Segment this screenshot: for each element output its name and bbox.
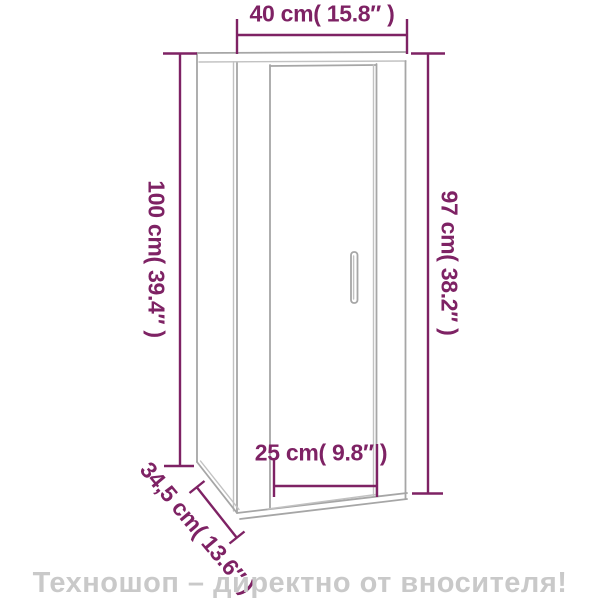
side-bottom-edge-outer — [197, 462, 237, 513]
door-bottom-edge — [268, 495, 376, 510]
cabinet-top-back-edge — [197, 52, 407, 53]
watermark-text: Техношоп – директно от вносителя! — [0, 567, 600, 600]
door-top-edge — [270, 65, 376, 66]
door-handle — [351, 252, 358, 303]
product-dimension-diagram: 40 cm( 15.8″ ) 100 cm( 39.4″ ) 97 cm( 38… — [0, 0, 600, 600]
height-right-dimension-label: 97 cm( 38.2″ ) — [436, 191, 463, 336]
cabinet-top-front-edge — [199, 61, 406, 62]
width-dimension-label: 40 cm( 15.8″ ) — [250, 1, 395, 28]
cabinet-line-drawing — [0, 0, 600, 600]
door-width-dimension-label: 25 cm( 9.8″ ) — [255, 440, 387, 467]
height-left-dimension-label: 100 cm( 39.4″ ) — [143, 180, 170, 337]
